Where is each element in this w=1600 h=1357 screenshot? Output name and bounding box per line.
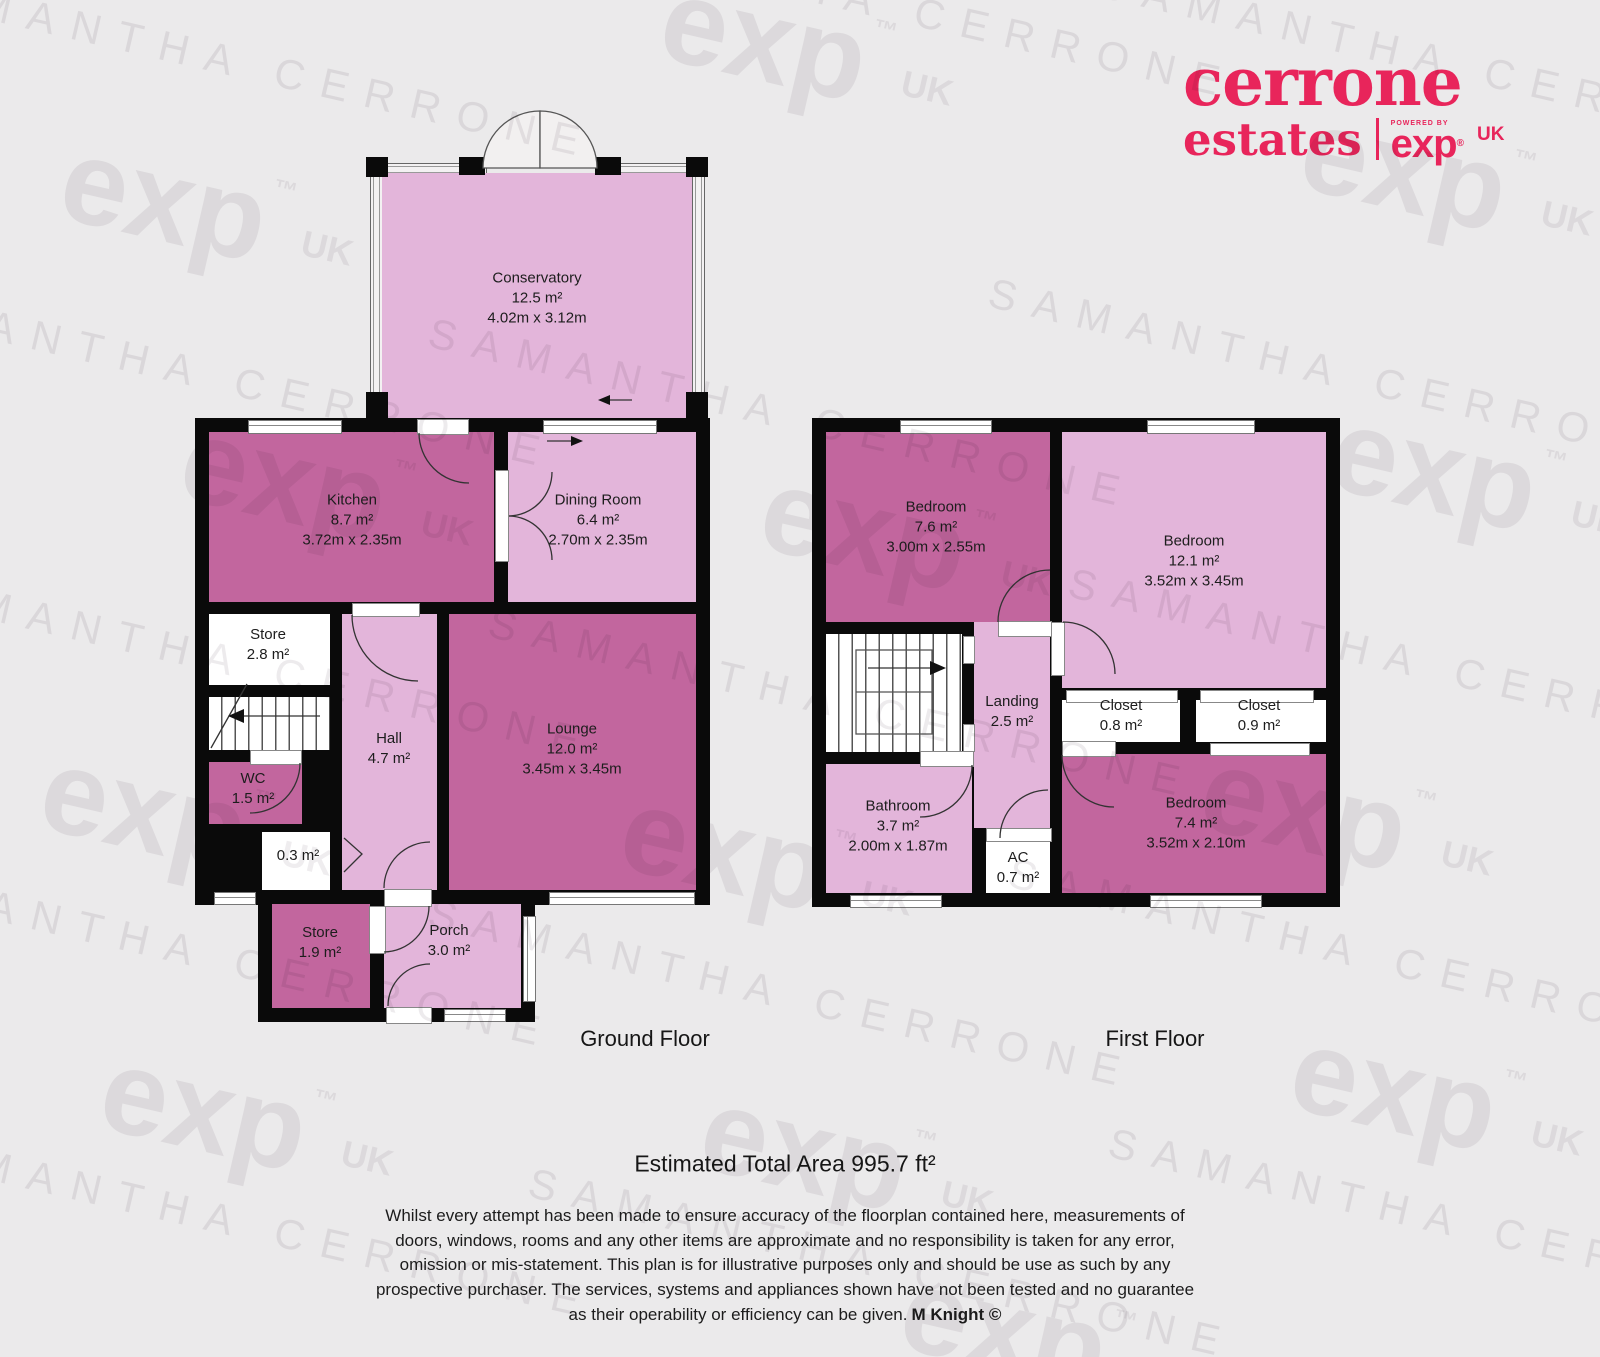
- label-landing: Landing 2.5 m²: [985, 692, 1038, 732]
- window-bedroom2-top: [1147, 420, 1255, 434]
- label-closet2: Closet 0.9 m²: [1238, 696, 1281, 736]
- floorplan-page: cerrone estates POWERED BY exp® UK: [0, 0, 1600, 1357]
- credit-text: M Knight ©: [911, 1305, 1001, 1324]
- window-bedroom3-bottom: [1150, 895, 1262, 908]
- label-lounge: Lounge 12.0 m² 3.45m x 3.45m: [522, 719, 621, 778]
- label-cubby: 0.3 m²: [277, 846, 320, 866]
- label-bedroom3: Bedroom 7.4 m² 3.52m x 2.10m: [1146, 793, 1245, 852]
- door-gap-wc: [250, 750, 302, 765]
- watermark-exp-logo: exp™UK: [650, 0, 968, 142]
- total-area-text: Estimated Total Area 995.7 ft²: [634, 1151, 935, 1178]
- wall-post: [459, 157, 485, 175]
- brand-uk: UK: [1477, 124, 1504, 146]
- label-hall: Hall 4.7 m²: [368, 729, 411, 769]
- door-gap-bedroom2: [1051, 622, 1065, 676]
- brand-sub: estates: [1183, 120, 1362, 160]
- label-kitchen: Kitchen 8.7 m² 3.72m x 2.35m: [302, 490, 401, 549]
- label-bathroom: Bathroom 3.7 m² 2.00m x 1.87m: [848, 796, 947, 855]
- window-porch-right: [523, 916, 536, 1002]
- label-store-ground: Store 2.8 m²: [247, 625, 290, 665]
- brand-logo: cerrone estates POWERED BY exp® UK: [1183, 52, 1528, 160]
- window-wc-bottom: [214, 892, 256, 905]
- wall-post: [366, 392, 388, 420]
- window-bathroom-bottom: [850, 895, 942, 908]
- door-gap-store-porch: [369, 906, 386, 954]
- ac-door: [986, 828, 1052, 842]
- conservatory-wall-right: [692, 163, 705, 420]
- registered-mark: ®: [1457, 138, 1463, 149]
- label-wc: WC 1.5 m²: [232, 769, 275, 809]
- door-gap-porch-front: [386, 1007, 432, 1024]
- watermark-exp-logo: exp™UK: [90, 1028, 408, 1212]
- wall-post: [366, 157, 388, 177]
- door-gap-bathroom: [920, 751, 974, 767]
- stairs-frame-bottom: [963, 724, 975, 752]
- label-dining: Dining Room 6.4 m² 2.70m x 2.35m: [548, 490, 647, 549]
- ground-floor-caption: Ground Floor: [580, 1026, 710, 1052]
- closet2-door-lower: [1210, 743, 1310, 756]
- stairs-ground: [209, 697, 330, 750]
- label-bedroom2: Bedroom 12.1 m² 3.52m x 3.45m: [1144, 531, 1243, 590]
- sliding-door-dining: [543, 420, 657, 434]
- wall-post: [686, 157, 708, 177]
- watermark-exp-logo: exp™UK: [50, 118, 368, 302]
- label-store-annex: Store 1.9 m²: [299, 923, 342, 963]
- wall-post: [686, 392, 708, 420]
- stairs-frame-top: [963, 636, 975, 664]
- label-porch: Porch 3.0 m²: [428, 921, 471, 961]
- stairs-first: [826, 634, 962, 752]
- door-gap-kitchen-dining: [495, 470, 509, 562]
- window-bedroom1-top: [900, 420, 992, 434]
- exp-logo: POWERED BY exp®: [1391, 120, 1463, 160]
- brand-divider: [1376, 118, 1379, 160]
- brand-name: cerrone: [1183, 52, 1528, 112]
- door-gap-hall-top: [352, 603, 420, 617]
- watermark-text: SAMANTHA CERRONE: [524, 0, 1241, 109]
- wall-post: [595, 157, 621, 175]
- disclaimer-text: Whilst every attempt has been made to en…: [365, 1204, 1205, 1327]
- door-gap-bedroom3: [1062, 741, 1116, 757]
- label-closet1: Closet 0.8 m²: [1100, 696, 1143, 736]
- window-porch-bottom: [444, 1009, 506, 1022]
- window-kitchen-top: [248, 420, 342, 434]
- watermark-exp-logo: exp™UK: [1280, 1008, 1598, 1192]
- label-bedroom1: Bedroom 7.6 m² 3.00m x 2.55m: [886, 497, 985, 556]
- window-lounge-bottom: [549, 892, 695, 905]
- watermark-exp-logo: exp™UK: [1320, 388, 1600, 572]
- label-ac: AC 0.7 m²: [997, 848, 1040, 888]
- door-gap-bedroom1: [998, 621, 1052, 637]
- door-gap-hall-porch: [384, 889, 432, 907]
- watermark-text: SAMANTHA CERRONE: [0, 0, 601, 169]
- first-floor-caption: First Floor: [1106, 1026, 1205, 1052]
- label-conservatory: Conservatory 12.5 m² 4.02m x 3.12m: [487, 268, 586, 327]
- door-gap-conservatory-kitchen: [417, 419, 469, 435]
